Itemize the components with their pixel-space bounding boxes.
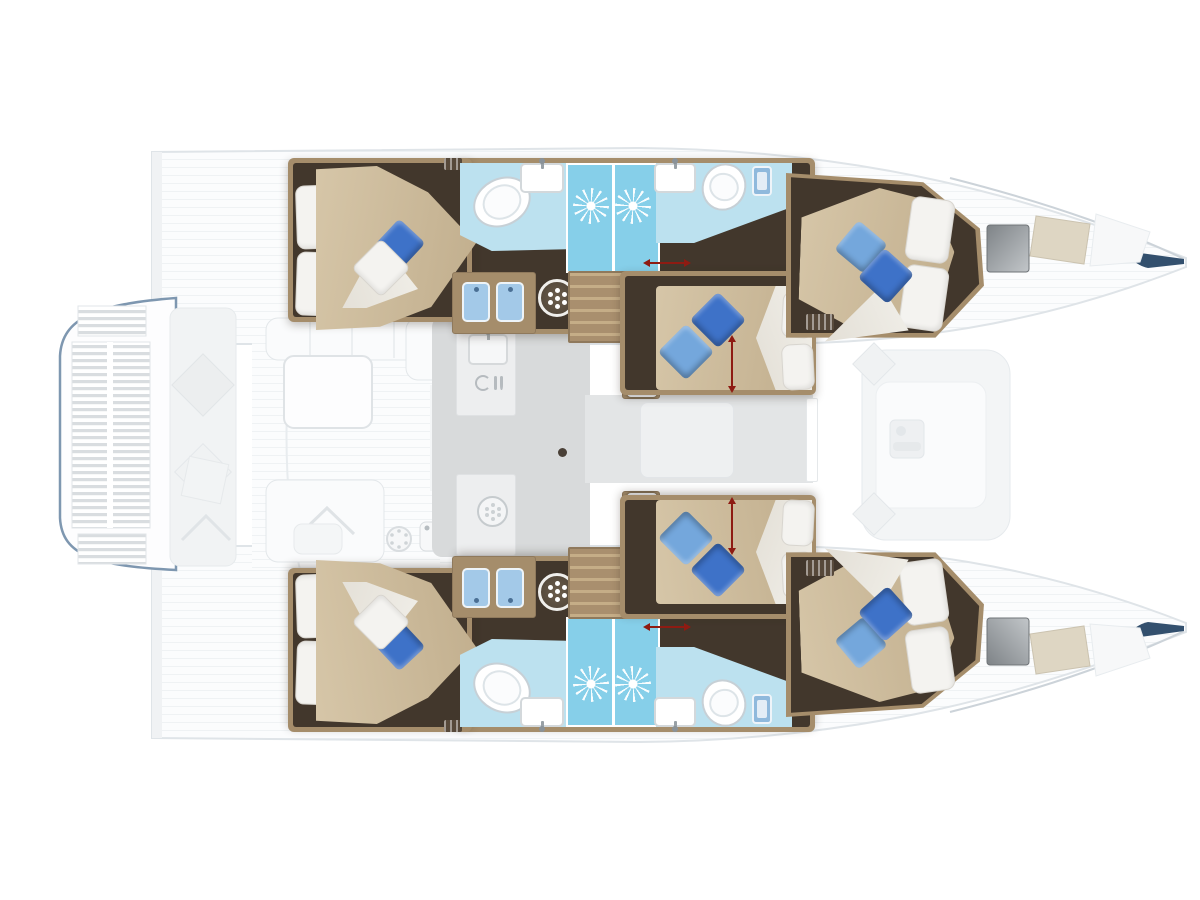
hull-starboard <box>0 445 1200 750</box>
bed-extension-arrow <box>731 342 733 386</box>
vanity-basin <box>462 568 490 608</box>
vanity-basin <box>462 282 490 322</box>
head-pillow <box>904 195 956 265</box>
head-pillow <box>781 343 815 391</box>
sink-icon <box>520 697 564 727</box>
sink-icon <box>654 163 696 193</box>
head-pillow <box>904 625 956 695</box>
sink-icon <box>520 163 564 193</box>
vanity-basin <box>496 568 524 608</box>
head-pillow <box>781 499 815 547</box>
sliding-door-arrow <box>650 626 684 628</box>
vanity-basin <box>496 282 524 322</box>
companionway-stairs <box>568 547 628 619</box>
shower-jet-icon <box>615 666 651 702</box>
hand-shower-icon <box>752 166 772 196</box>
bed-extension-arrow <box>731 504 733 548</box>
shower-jet-icon <box>615 188 651 224</box>
catamaran-floorplan <box>0 0 1200 900</box>
hull-port <box>0 140 1200 445</box>
air-vent-icon <box>806 560 834 576</box>
sink-icon <box>654 697 696 727</box>
sliding-door-arrow <box>650 262 684 264</box>
shower-jet-icon <box>573 666 609 702</box>
air-vent-icon <box>806 314 834 330</box>
air-vent-icon <box>444 720 462 732</box>
air-vent-icon <box>444 158 462 170</box>
companionway-stairs <box>568 271 628 343</box>
hand-shower-icon <box>752 694 772 724</box>
shower-jet-icon <box>573 188 609 224</box>
